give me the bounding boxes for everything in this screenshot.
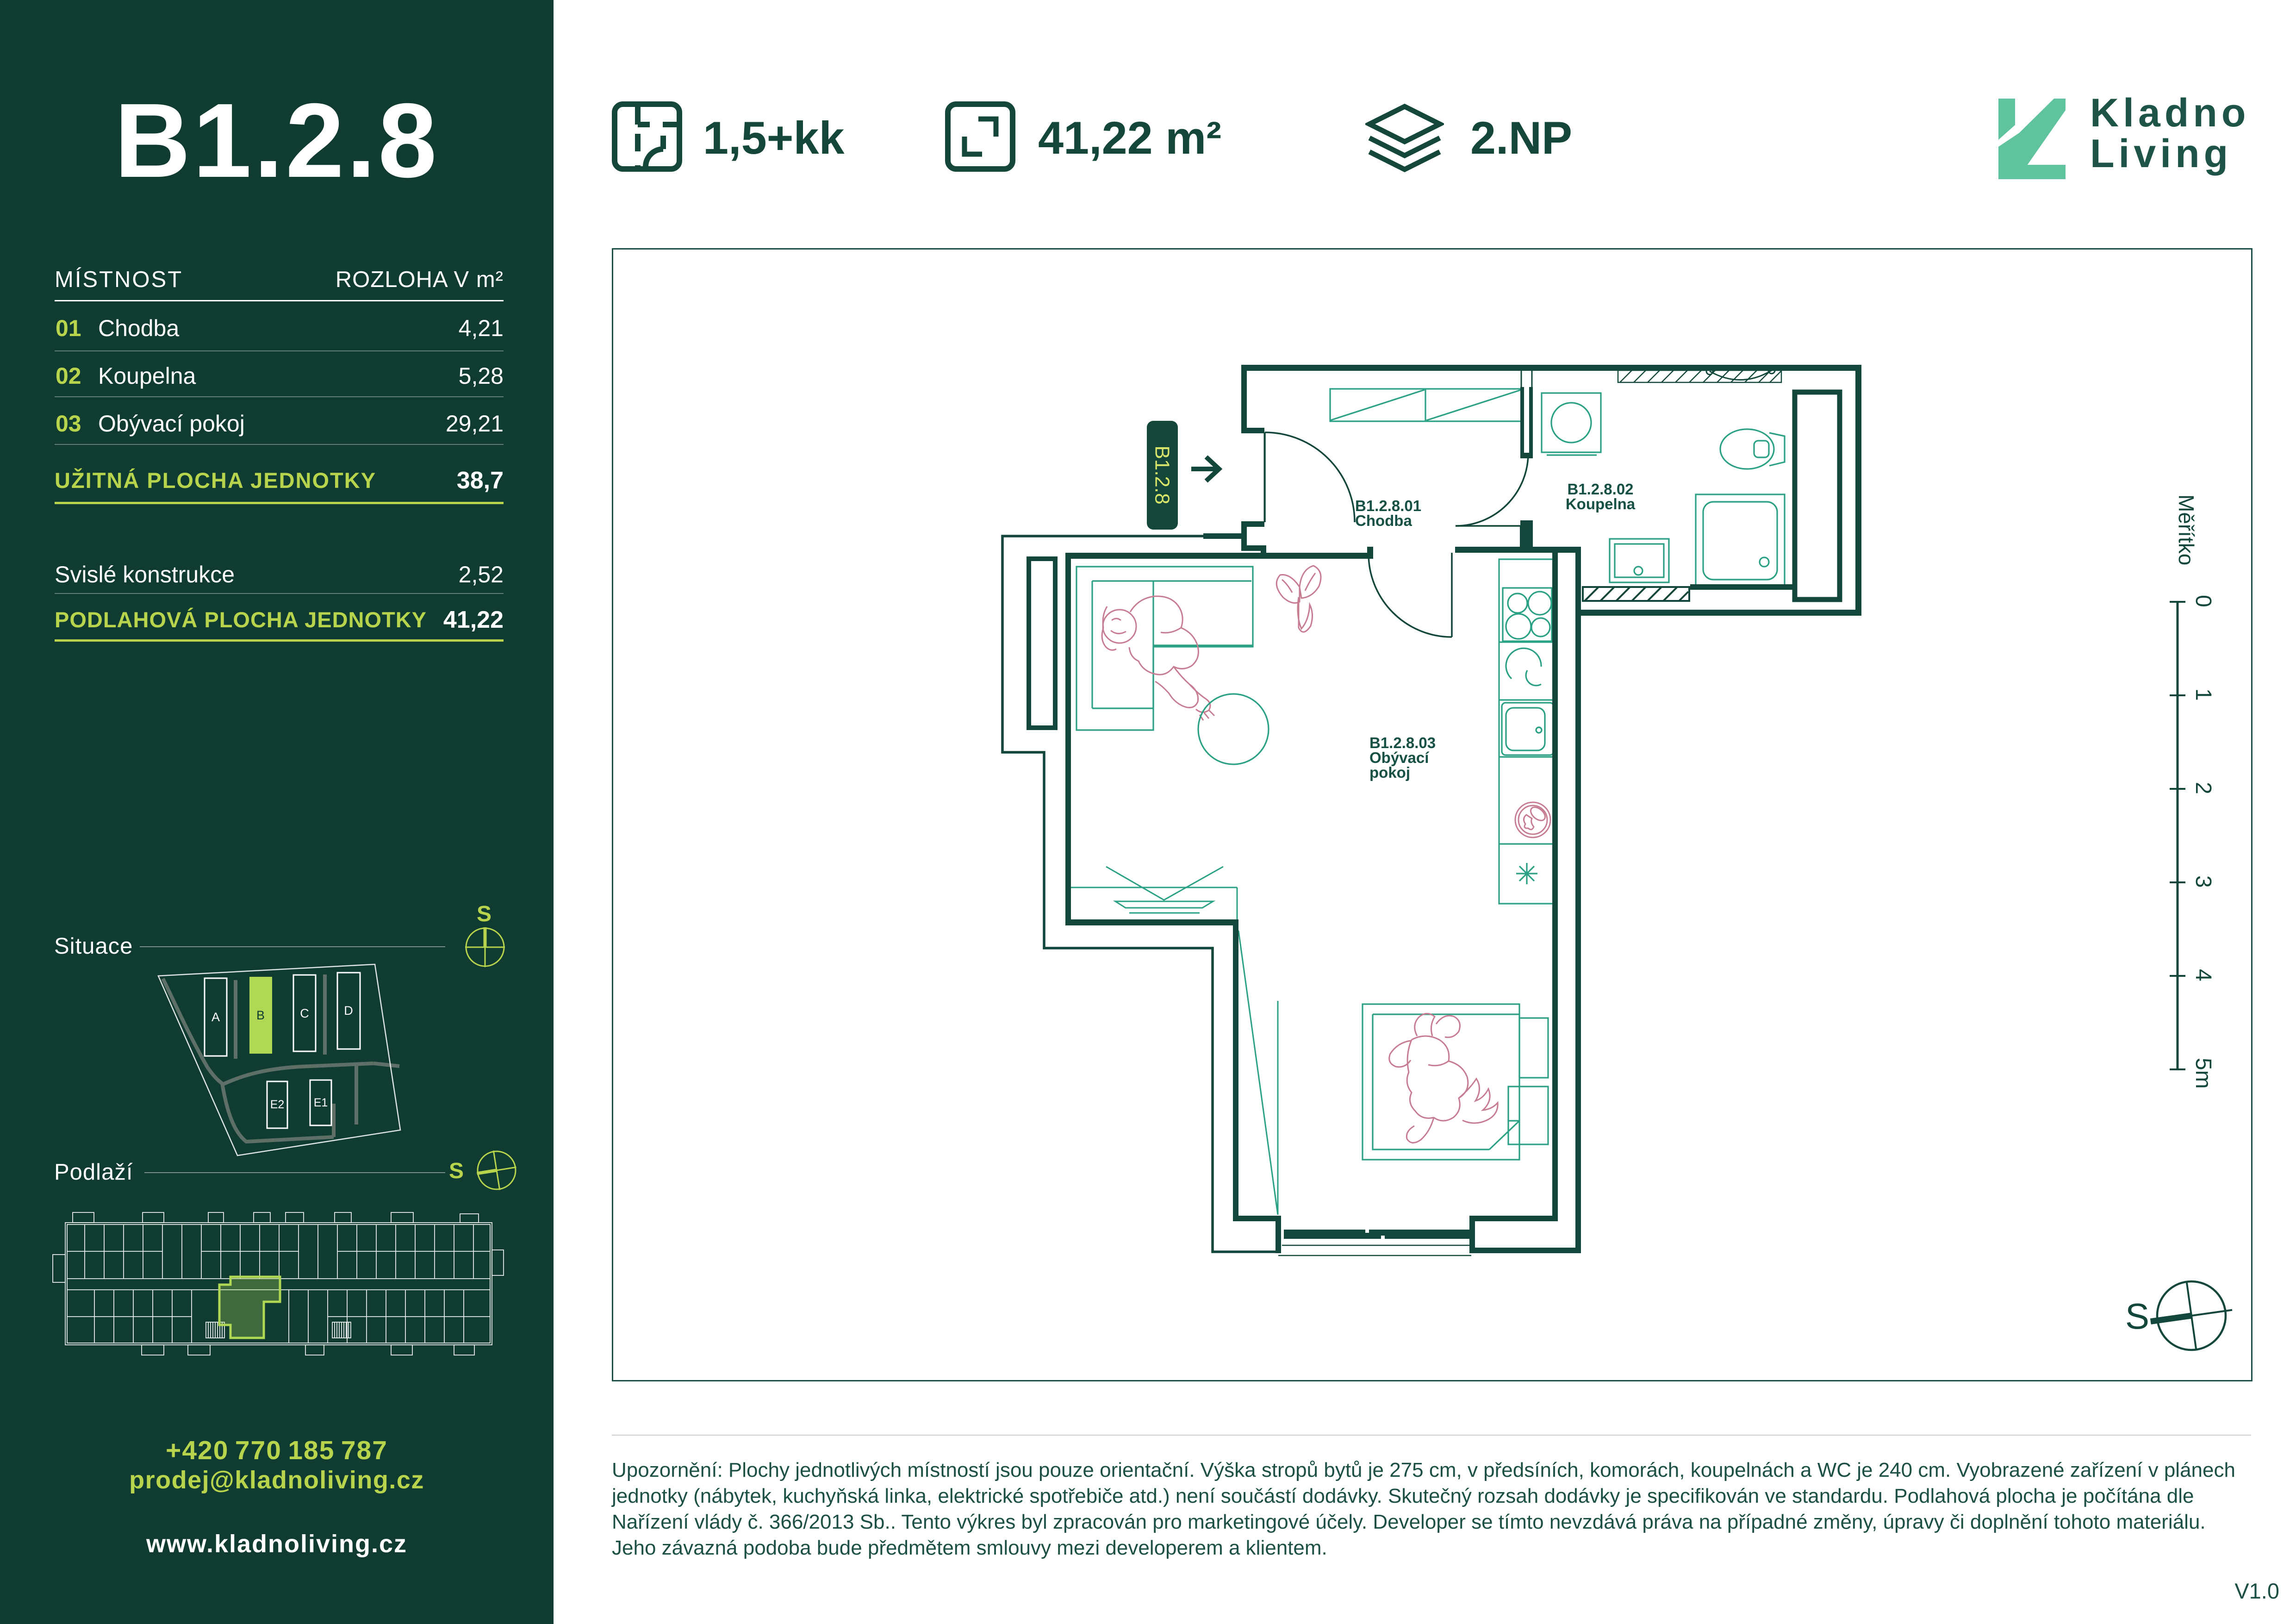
svg-text:3: 3	[2191, 875, 2215, 888]
svg-text:Chodba: Chodba	[1355, 512, 1412, 529]
svg-text:E1: E1	[314, 1096, 328, 1109]
svg-text:D: D	[344, 1004, 353, 1018]
svg-text:Koupelna: Koupelna	[1566, 495, 1636, 512]
svg-text:B1.2.8: B1.2.8	[1151, 445, 1174, 504]
svg-text:5m: 5m	[2191, 1058, 2215, 1089]
svg-text:B: B	[256, 1008, 265, 1022]
svg-text:0: 0	[2191, 595, 2215, 607]
svg-text:1: 1	[2191, 688, 2215, 701]
svg-text:Living: Living	[2090, 131, 2232, 176]
svg-text:4: 4	[2191, 969, 2215, 981]
svg-text:E2: E2	[270, 1098, 285, 1111]
svg-text:Měřítko: Měřítko	[2174, 494, 2198, 565]
svg-text:S: S	[449, 1159, 464, 1183]
svg-text:S: S	[2125, 1296, 2149, 1337]
svg-text:pokoj: pokoj	[1369, 764, 1410, 781]
svg-text:A: A	[212, 1010, 220, 1024]
svg-text:S: S	[477, 902, 492, 926]
svg-text:C: C	[300, 1006, 309, 1020]
svg-text:2: 2	[2191, 782, 2215, 794]
svg-text:Kladno: Kladno	[2090, 95, 2250, 135]
